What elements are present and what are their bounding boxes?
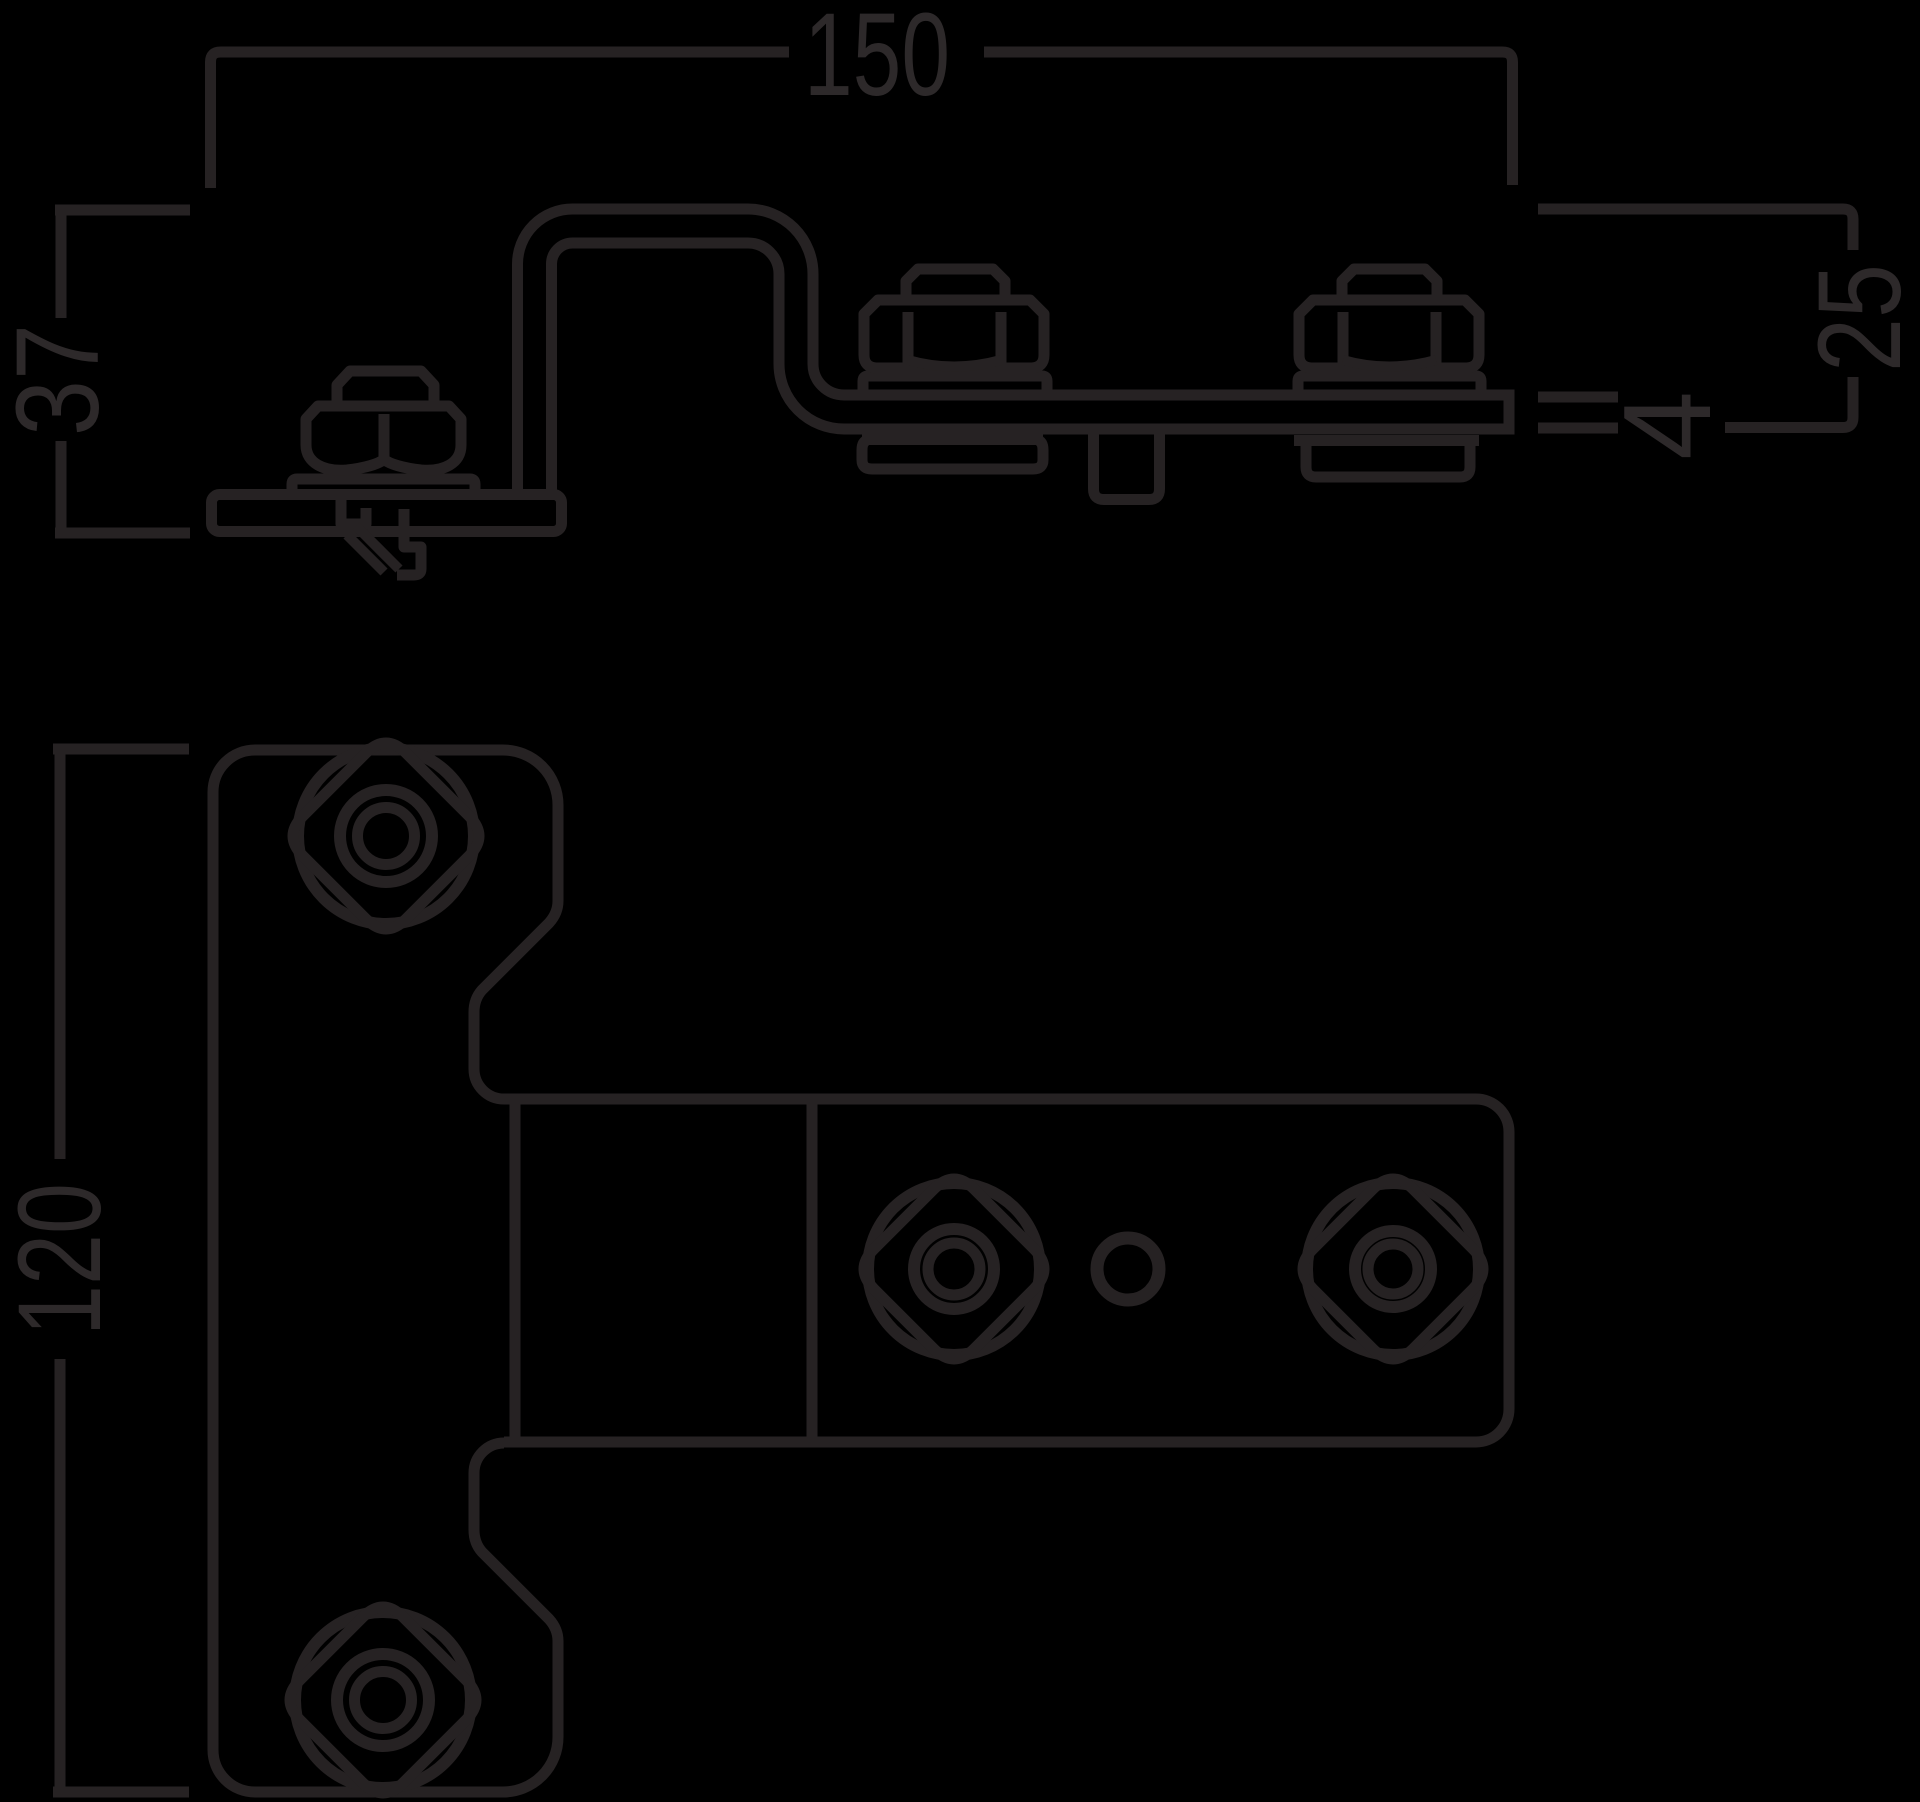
svg-text:120: 120 bbox=[0, 1183, 126, 1336]
svg-text:4: 4 bbox=[1599, 391, 1737, 460]
svg-text:37: 37 bbox=[0, 324, 124, 436]
svg-text:25: 25 bbox=[1794, 264, 1920, 372]
svg-text:150: 150 bbox=[804, 0, 950, 121]
